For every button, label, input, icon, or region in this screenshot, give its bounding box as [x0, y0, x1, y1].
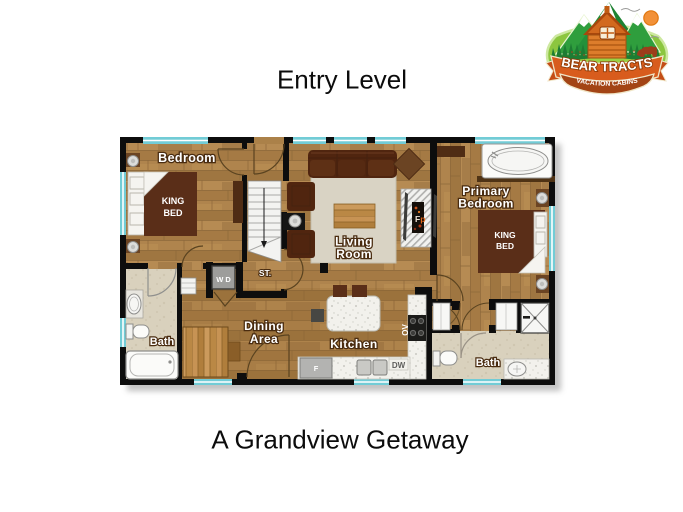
svg-text:BED: BED	[496, 241, 514, 251]
svg-text:W D: W D	[216, 275, 231, 284]
svg-text:Fp: Fp	[415, 214, 425, 224]
svg-text:KING: KING	[162, 196, 185, 206]
svg-text:Bath: Bath	[150, 336, 175, 348]
svg-text:ST.: ST.	[259, 268, 271, 278]
svg-text:KING: KING	[494, 230, 516, 240]
svg-text:Bedroom: Bedroom	[458, 197, 513, 211]
svg-text:Kitchen: Kitchen	[330, 337, 378, 351]
svg-text:Bedroom: Bedroom	[158, 151, 216, 165]
svg-text:A Grandview Getaway: A Grandview Getaway	[211, 424, 468, 454]
svg-text:OV: OV	[401, 324, 410, 336]
svg-text:Room: Room	[336, 247, 372, 261]
svg-text:BED: BED	[163, 208, 183, 218]
svg-text:DW: DW	[392, 361, 406, 370]
svg-text:Area: Area	[250, 332, 278, 346]
svg-text:F: F	[314, 364, 319, 373]
svg-text:Entry Level: Entry Level	[277, 65, 407, 95]
svg-text:Dining: Dining	[244, 319, 284, 333]
svg-text:Bath: Bath	[476, 357, 501, 369]
